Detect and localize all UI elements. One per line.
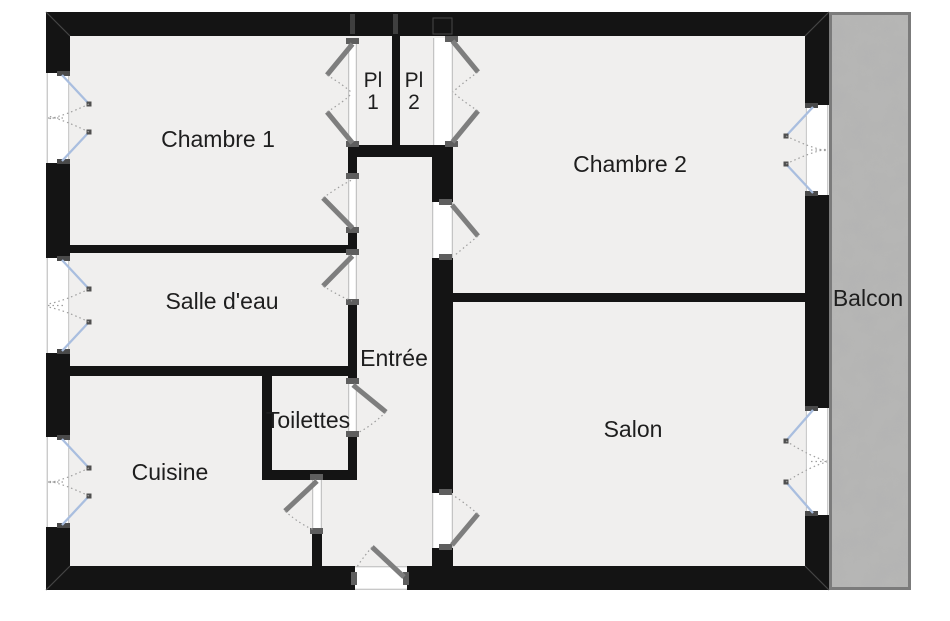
room-label-placard2-line2: 2 — [408, 91, 420, 114]
floor-plan-canvas: Chambre 1 Chambre 2 Salle d'eau Entrée T… — [0, 0, 950, 621]
wall-corridor-left-3 — [348, 303, 357, 382]
door-hinge — [439, 199, 452, 205]
wall-chambre2-salon — [453, 293, 805, 302]
jamb-mark-divider — [393, 14, 398, 34]
door-hinge — [346, 173, 359, 179]
door-hinge — [445, 36, 458, 42]
room-label-placard1-line1: Pl — [364, 69, 383, 92]
wall-chambre1-salledeau — [70, 245, 357, 253]
door-opening — [432, 493, 453, 548]
door-hinge — [346, 378, 359, 384]
wall-placard-divider — [392, 36, 400, 145]
door-hinge — [346, 38, 359, 44]
room-label-cuisine: Cuisine — [132, 459, 209, 485]
room-label-salledeau: Salle d'eau — [165, 288, 278, 314]
room-label-entree: Entrée — [360, 345, 428, 371]
wall-salledeau-cuisine — [70, 366, 357, 376]
door-opening — [348, 42, 357, 145]
door-hinge — [445, 141, 458, 147]
wall-corridor-right-1 — [432, 145, 453, 202]
room-label-chambre1: Chambre 1 — [161, 126, 275, 152]
door-opening — [433, 38, 453, 145]
door-hinge — [351, 572, 357, 585]
wall-exterior-bottom — [46, 566, 829, 590]
door-hinge — [310, 474, 323, 480]
wall-corridor-right-2 — [432, 258, 453, 493]
room-label-chambre2: Chambre 2 — [573, 151, 687, 177]
door-hinge — [439, 489, 452, 495]
door-hinge — [346, 249, 359, 255]
room-label-toilettes: Toilettes — [266, 407, 350, 433]
wall-exterior-top — [46, 12, 829, 36]
room-label-balcon: Balcon — [833, 285, 903, 311]
room-label-placard2-line1: Pl — [405, 69, 424, 92]
door-hinge — [439, 254, 452, 260]
wall-toilettes-bottom — [262, 470, 357, 480]
room-label-placard1-line2: 1 — [367, 91, 379, 114]
room-label-salon: Salon — [604, 416, 663, 442]
door-opening — [432, 202, 453, 258]
jamb-mark-placard1 — [350, 14, 355, 34]
door-hinge — [439, 544, 452, 550]
wall-corridor-right-3 — [432, 548, 453, 566]
floor-plan: Chambre 1 Chambre 2 Salle d'eau Entrée T… — [0, 0, 950, 621]
wall-cuisine-entree-stub — [312, 532, 322, 566]
